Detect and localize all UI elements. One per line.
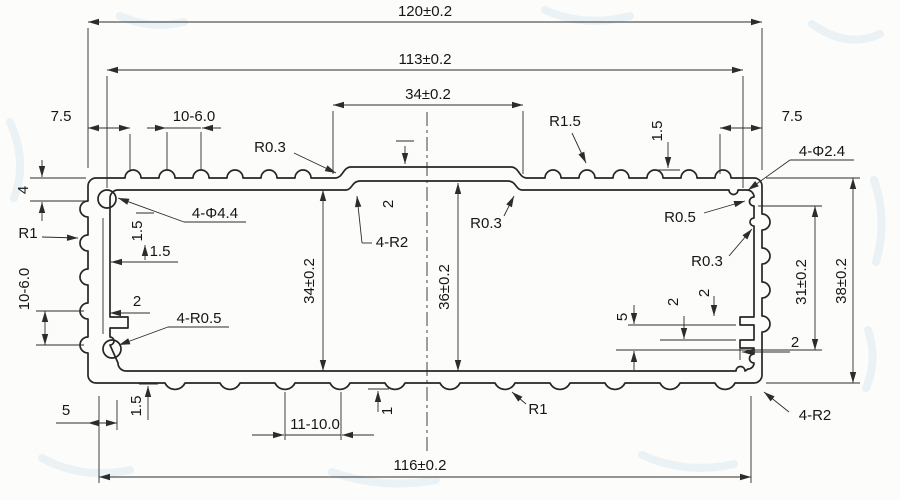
label-r1-bottom: R1 [528,401,547,418]
dim-right-rib-a: 2 [665,298,682,306]
dim-floor-thickness: 1.5 [128,396,145,417]
dim-right-rib-depth: 2 [791,334,799,351]
leader-recess-radius [357,196,362,243]
profile-outer-contour [80,167,770,389]
leader-r05-groove [704,201,745,213]
leader-r03-pocket [504,196,514,216]
dim-corner-height: 4 [15,186,32,194]
dim-left-fin-pitch: 10-6.0 [16,268,33,311]
label-r03-pocket: R0.3 [470,215,502,232]
dim-center-step: 2 [380,200,397,208]
drawing-sheet: 120±0.2 113±0.2 34±0.2 7.5 10-6.0 R0.3 R… [0,0,900,500]
dim-right-overall-height: 38±0.2 [833,258,850,304]
label-screw-holes-left: 4-Φ4.4 [192,205,238,222]
dim-center-width: 34±0.2 [405,86,451,103]
small-dim-arrows [42,128,790,435]
dim-inner-width: 113±0.2 [399,51,452,68]
screw-boss-top-left [98,190,116,208]
dim-bottom-fin-depth: 1 [379,407,396,415]
dim-left-bottom-offset: 5 [62,402,70,419]
dim-overall-width: 120±0.2 [398,3,452,20]
dim-top-fin-height: 1.5 [649,121,666,142]
leader-screw-holes-right [748,160,790,190]
leader-r03-boss [729,229,752,256]
dim-bottom-fin-pitch: 11-10.0 [290,416,340,433]
leader-r1-left [42,237,78,238]
dim-left-offset: 7.5 [51,108,72,125]
label-slot-radius-left: 4-R0.5 [176,310,221,327]
dim-wall-thickness-v: 1.5 [129,221,146,242]
dimension-layer: 120±0.2 113±0.2 34±0.2 7.5 10-6.0 R0.3 R… [15,3,860,483]
label-r2-corner: 4-R2 [799,407,832,424]
dim-right-rib-b: 2 [696,289,713,297]
label-r03-boss: R0.3 [691,253,723,270]
dim-right-inner-height: 31±0.2 [793,259,810,305]
dim-left-rib: 2 [133,293,141,310]
dim-cavity-height-mid: 36±0.2 [436,264,453,310]
label-screw-holes-right: 4-Φ2.4 [799,143,845,160]
technical-drawing: 120±0.2 113±0.2 34±0.2 7.5 10-6.0 R0.3 R… [0,0,900,500]
leader-r2-corner [764,392,789,412]
label-r1-left: R1 [18,225,37,242]
dim-right-offset: 7.5 [782,108,803,125]
dim-wall-thickness-h: 1.5 [150,243,171,260]
label-r03-ramp: R0.3 [254,139,286,156]
label-r15-fin: R1.5 [549,113,581,130]
dim-cavity-height-left: 34±0.2 [301,258,318,304]
dim-right-slot-offset: 5 [614,313,631,321]
leader-r1-bottom [512,392,526,404]
dim-top-fin-pitch: 10-6.0 [173,108,216,125]
extrusion-profile [80,112,770,452]
dim-bottom-width: 116±0.2 [394,457,447,474]
leader-slot-radius-left [119,327,168,345]
label-recess-radius: 4-R2 [376,234,409,251]
label-r05-groove: R0.5 [664,209,696,226]
leader-r15-fin [572,133,586,163]
dimension-labels: 120±0.2 113±0.2 34±0.2 7.5 10-6.0 R0.3 R… [15,3,850,474]
leader-screw-holes-left [118,198,184,222]
